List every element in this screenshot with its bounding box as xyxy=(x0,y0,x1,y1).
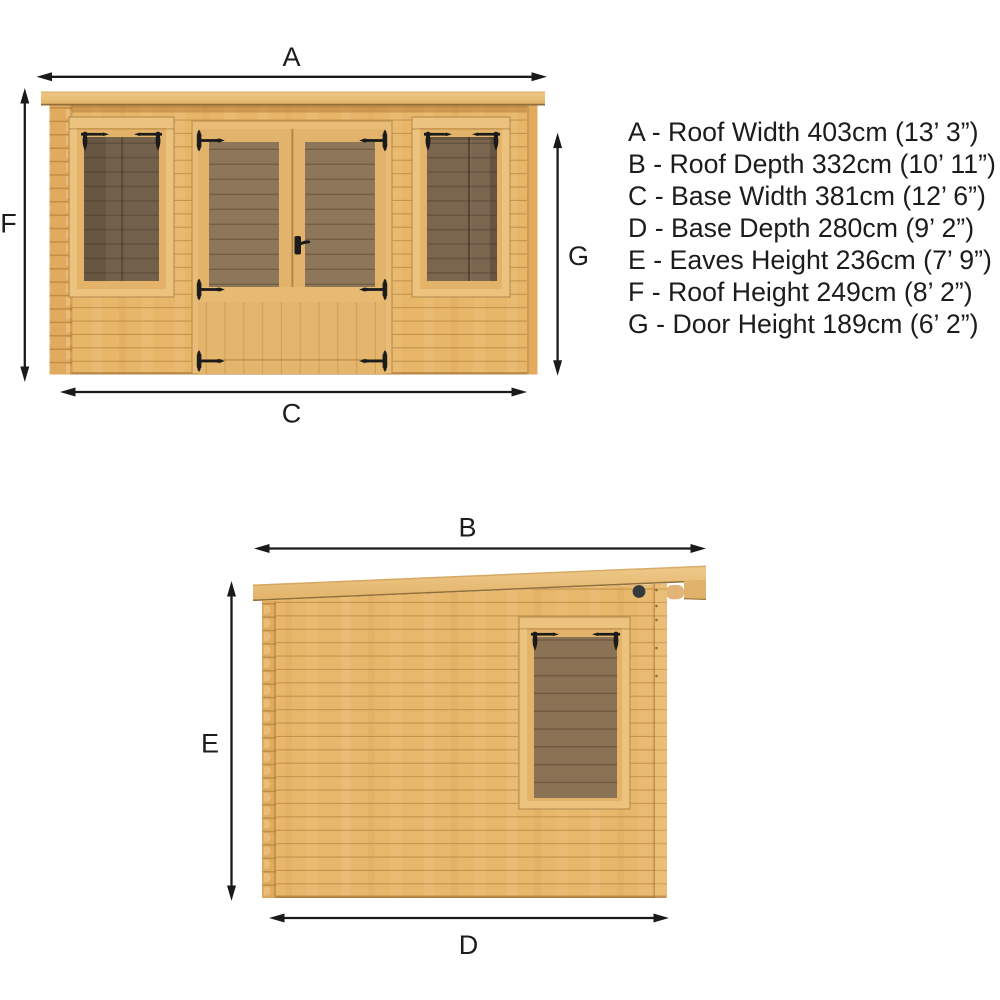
svg-text:A - Roof Width 403cm (13’ 3”): A - Roof Width 403cm (13’ 3”) xyxy=(628,117,979,147)
svg-text:F - Roof Height 249cm (8’ 2”): F - Roof Height 249cm (8’ 2”) xyxy=(628,277,973,307)
svg-text:E - Eaves Height 236cm (7’ 9”): E - Eaves Height 236cm (7’ 9”) xyxy=(628,245,992,275)
svg-text:B: B xyxy=(458,513,476,543)
svg-text:E: E xyxy=(201,729,219,759)
svg-text:C - Base Width 381cm (12’ 6”): C - Base Width 381cm (12’ 6”) xyxy=(628,181,986,211)
svg-text:D: D xyxy=(459,930,479,960)
svg-text:A: A xyxy=(282,42,300,72)
svg-text:C: C xyxy=(282,399,302,429)
svg-text:D - Base Depth 280cm (9’ 2”): D - Base Depth 280cm (9’ 2”) xyxy=(628,213,974,243)
svg-text:F: F xyxy=(0,209,17,239)
svg-text:B - Roof Depth 332cm (10’ 11”): B - Roof Depth 332cm (10’ 11”) xyxy=(628,149,996,179)
svg-text:G: G xyxy=(568,241,589,271)
svg-text:G - Door Height 189cm (6’ 2”): G - Door Height 189cm (6’ 2”) xyxy=(628,309,979,339)
